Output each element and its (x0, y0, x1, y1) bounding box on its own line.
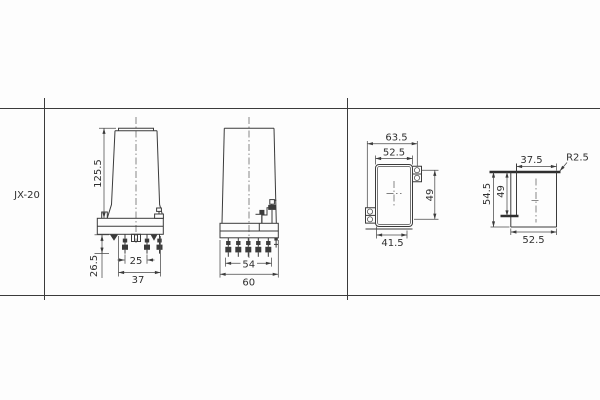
dim-label: 52.5 (383, 148, 405, 159)
dim-side-pin-length: 26.5 (89, 235, 109, 278)
panel-cutout-side-view: 37.5 R2.5 54.5 49 52.5 (482, 153, 589, 247)
dim-label: 60 (242, 278, 255, 289)
relay-pin (265, 238, 271, 257)
dim-cutout2-corner-radius: R2.5 (560, 153, 589, 172)
dim-cutout-opening-width: 52.5 (376, 148, 413, 165)
dim-label: 41.5 (381, 238, 403, 249)
relay-front-view: 54 60 (220, 117, 278, 289)
mounting-tab-top-right (413, 166, 422, 181)
dim-label: 63.5 (385, 133, 407, 144)
screw-hole (367, 209, 372, 214)
dimension-diagram: JX-20 (0, 0, 600, 400)
dim-cutout-lower-width: 41.5 (377, 227, 408, 250)
dim-label: 37 (132, 275, 145, 286)
dim-cutout2-lower-width: 52.5 (511, 229, 557, 247)
dim-label: 25 (130, 256, 143, 267)
relay-body-outline (107, 128, 163, 218)
screw-hole (367, 217, 372, 222)
dim-label: 49 (496, 185, 507, 198)
dim-cutout-overall-width: 63.5 (367, 133, 417, 208)
dimension-drawing-page: JX-20 (0, 0, 600, 400)
panel-cutout-front-view: 63.5 52.5 49 41.5 (366, 133, 439, 249)
dim-cutout-height: 49 (414, 170, 439, 219)
model-label: JX-20 (13, 190, 40, 201)
relay-pin (235, 238, 241, 257)
dim-cutout2-opening-height: 49 (496, 172, 507, 216)
relay-pin (122, 234, 128, 253)
dim-cutout2-overall-height: 54.5 (482, 172, 510, 227)
front-clip (102, 212, 108, 218)
dim-label: 54 (242, 260, 255, 271)
cover-screw (268, 200, 276, 224)
dim-label: 125.5 (93, 159, 104, 188)
center-mark (532, 179, 541, 223)
relay-pin (144, 234, 150, 253)
mount-foot (151, 235, 158, 241)
relay-pin (157, 234, 163, 253)
dim-label: 54.5 (482, 183, 493, 205)
dim-side-pin-spacing: 25 (118, 255, 155, 267)
relay-pins-side (122, 234, 163, 253)
side-screw (274, 238, 278, 248)
dim-label: R2.5 (566, 153, 589, 164)
cover-screw (256, 210, 265, 223)
relay-base-flange (97, 208, 163, 241)
screw-hole (414, 175, 419, 180)
dim-cutout2-upper-width: 37.5 (517, 155, 557, 171)
mount-foot (110, 235, 118, 241)
relay-pin (255, 238, 261, 257)
relay-side-view: 125.5 26.5 25 37 (89, 117, 163, 286)
relay-pin (225, 238, 231, 257)
mounting-tab-bottom-left (366, 208, 376, 223)
relay-pins-front (225, 238, 278, 257)
dim-label: 52.5 (522, 235, 544, 246)
relay-pin (245, 238, 251, 257)
dim-label: 37.5 (520, 155, 542, 166)
dim-label: 26.5 (89, 255, 100, 277)
center-mark (387, 181, 402, 206)
dim-label: 49 (425, 189, 436, 202)
screw-hole (414, 168, 419, 173)
dim-front-pin-row: 54 (226, 258, 272, 271)
